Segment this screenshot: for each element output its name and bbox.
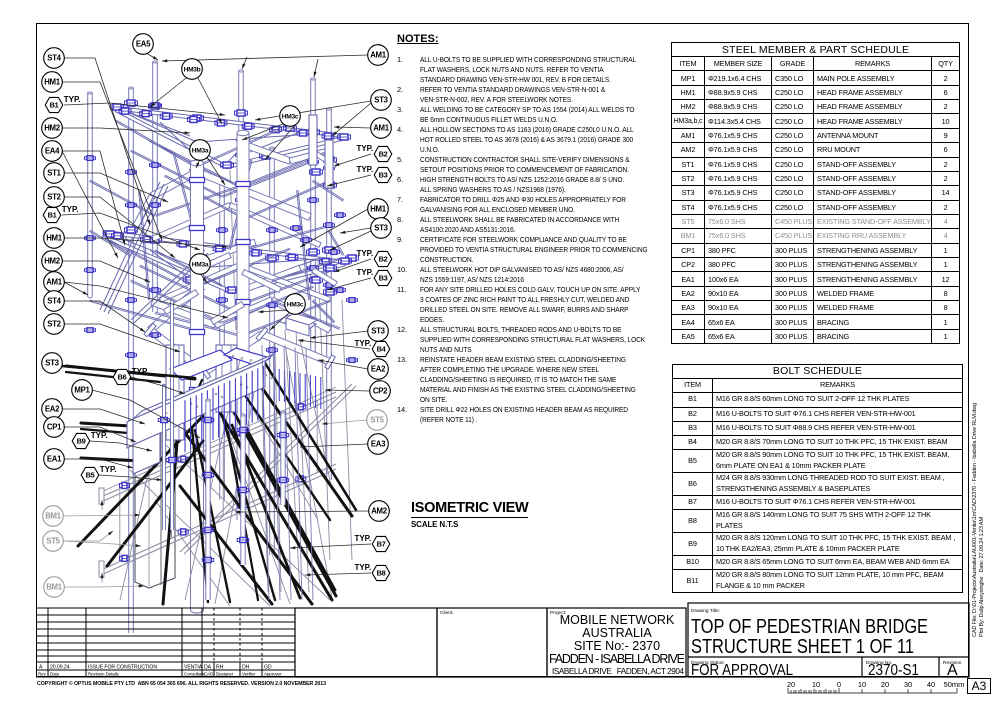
svg-text:10: 10 [812, 680, 820, 689]
svg-text:20.09.24: 20.09.24 [50, 665, 70, 671]
svg-text:MOBILE NETWORK: MOBILE NETWORK [560, 613, 675, 627]
svg-text:10: 10 [858, 680, 866, 689]
svg-text:A: A [947, 662, 958, 679]
svg-text:ISSUE FOR CONSTRUCTION: ISSUE FOR CONSTRUCTION [88, 665, 157, 671]
svg-text:FOR APPROVAL: FOR APPROVAL [691, 662, 793, 679]
svg-text:GD: GD [264, 665, 272, 671]
svg-text:FADDEN - ISABELLA DRIVE: FADDEN - ISABELLA DRIVE [549, 652, 685, 666]
svg-text:ISABELLA DRIVE FADDEN, ACT 2: ISABELLA DRIVE FADDEN, ACT 2904 [552, 667, 684, 676]
svg-text:Designer: Designer [216, 672, 234, 677]
svg-text:Client:: Client: [440, 610, 454, 616]
svg-text:AUSTRALIA: AUSTRALIA [582, 626, 652, 640]
svg-text:20: 20 [881, 680, 889, 689]
svg-text:DH: DH [242, 665, 250, 671]
svg-text:40: 40 [927, 680, 935, 689]
svg-text:Consultant: Consultant [184, 672, 205, 677]
svg-text:STRUCTURE SHEET 1 OF 11: STRUCTURE SHEET 1 OF 11 [691, 635, 914, 658]
svg-text:Approver: Approver [264, 672, 282, 677]
svg-text:Date: Date [50, 672, 60, 677]
svg-text:2370-S1: 2370-S1 [868, 662, 919, 679]
svg-text:CAD: CAD [204, 672, 214, 677]
svg-text:Drawing Title:: Drawing Title: [691, 608, 720, 614]
svg-text:20: 20 [787, 680, 795, 689]
svg-text:SITE No:- 2370: SITE No:- 2370 [574, 639, 660, 653]
svg-text:Verifier: Verifier [242, 672, 256, 677]
svg-text:Rev: Rev [38, 672, 47, 677]
svg-text:RH: RH [216, 665, 224, 671]
svg-text:30: 30 [904, 680, 912, 689]
svg-text:VENTIA: VENTIA [184, 665, 203, 671]
svg-text:DA: DA [204, 665, 212, 671]
svg-text:50mm: 50mm [944, 680, 965, 689]
svg-text:Revision Details: Revision Details [88, 672, 120, 677]
svg-text:0: 0 [837, 680, 841, 689]
